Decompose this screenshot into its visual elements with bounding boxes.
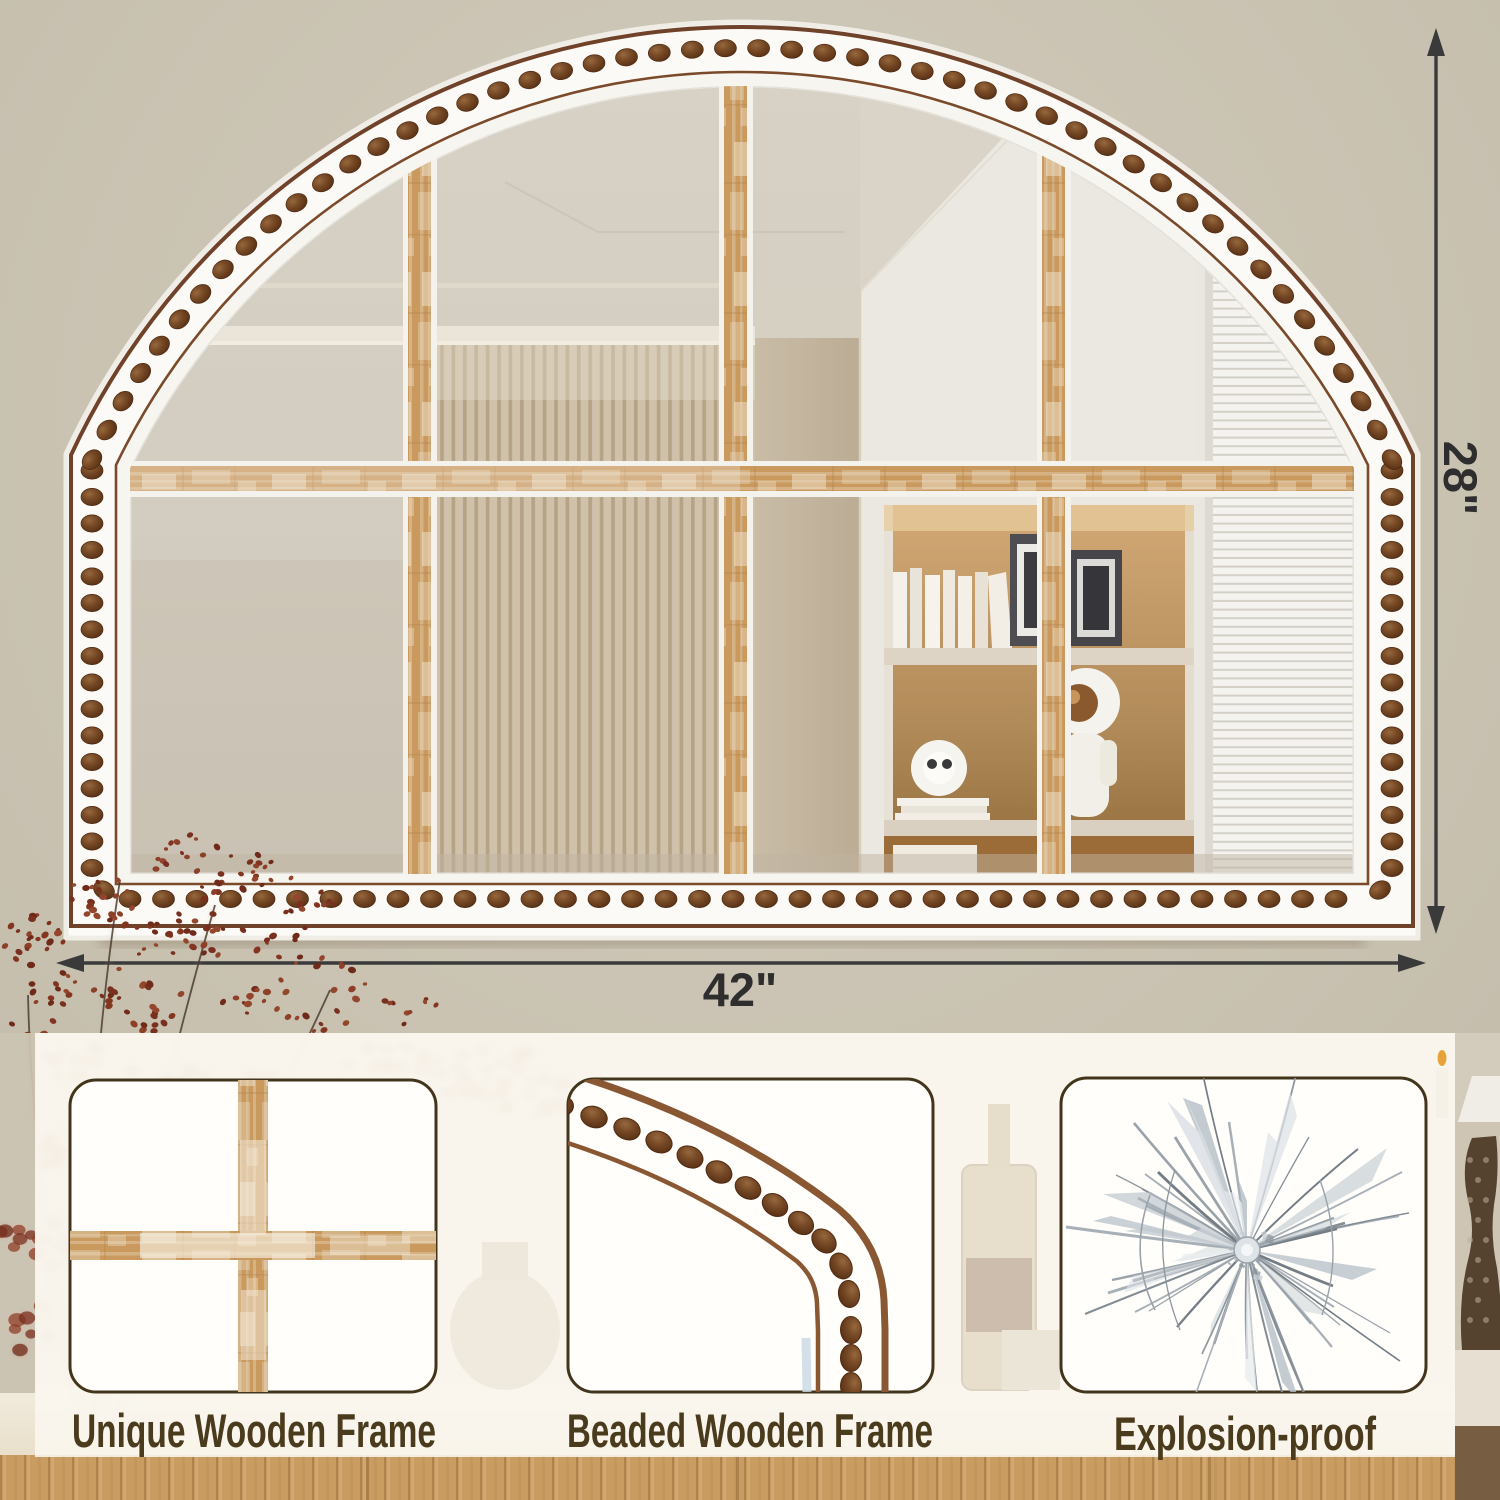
svg-text:Unique Wooden Frame: Unique Wooden Frame — [72, 1404, 436, 1457]
svg-text:42": 42" — [703, 963, 778, 1016]
svg-text:Explosion-proof: Explosion-proof — [1114, 1407, 1376, 1460]
svg-text:Beaded Wooden Frame: Beaded Wooden Frame — [567, 1404, 933, 1457]
svg-text:28": 28" — [1434, 441, 1487, 516]
